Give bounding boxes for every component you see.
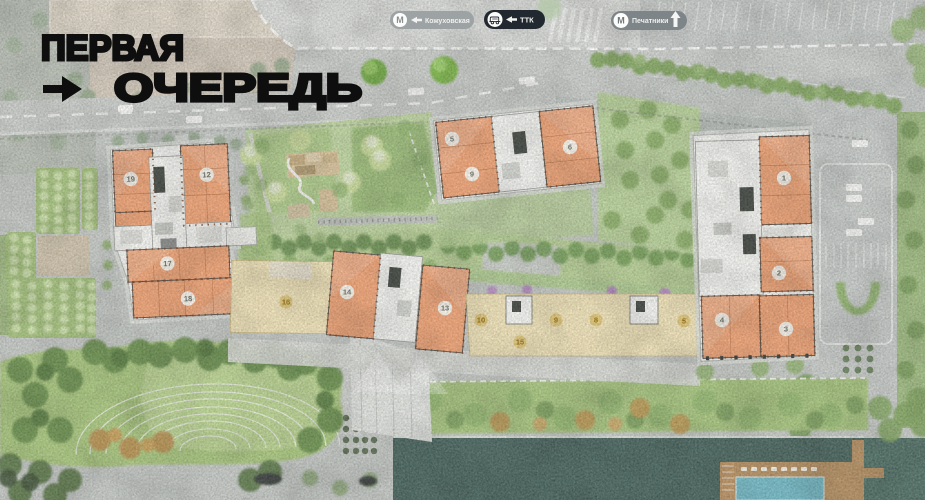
svg-text:Кожуховская: Кожуховская <box>425 18 470 25</box>
svg-text:ОЧЕРЕДЬ: ОЧЕРЕДЬ <box>114 67 362 110</box>
svg-text:ТТК: ТТК <box>520 16 534 25</box>
svg-text:М: М <box>396 15 404 25</box>
svg-text:Печатники: Печатники <box>632 18 668 25</box>
svg-text:М: М <box>617 16 625 26</box>
svg-text:ПЕРВАЯ: ПЕРВАЯ <box>41 29 184 68</box>
